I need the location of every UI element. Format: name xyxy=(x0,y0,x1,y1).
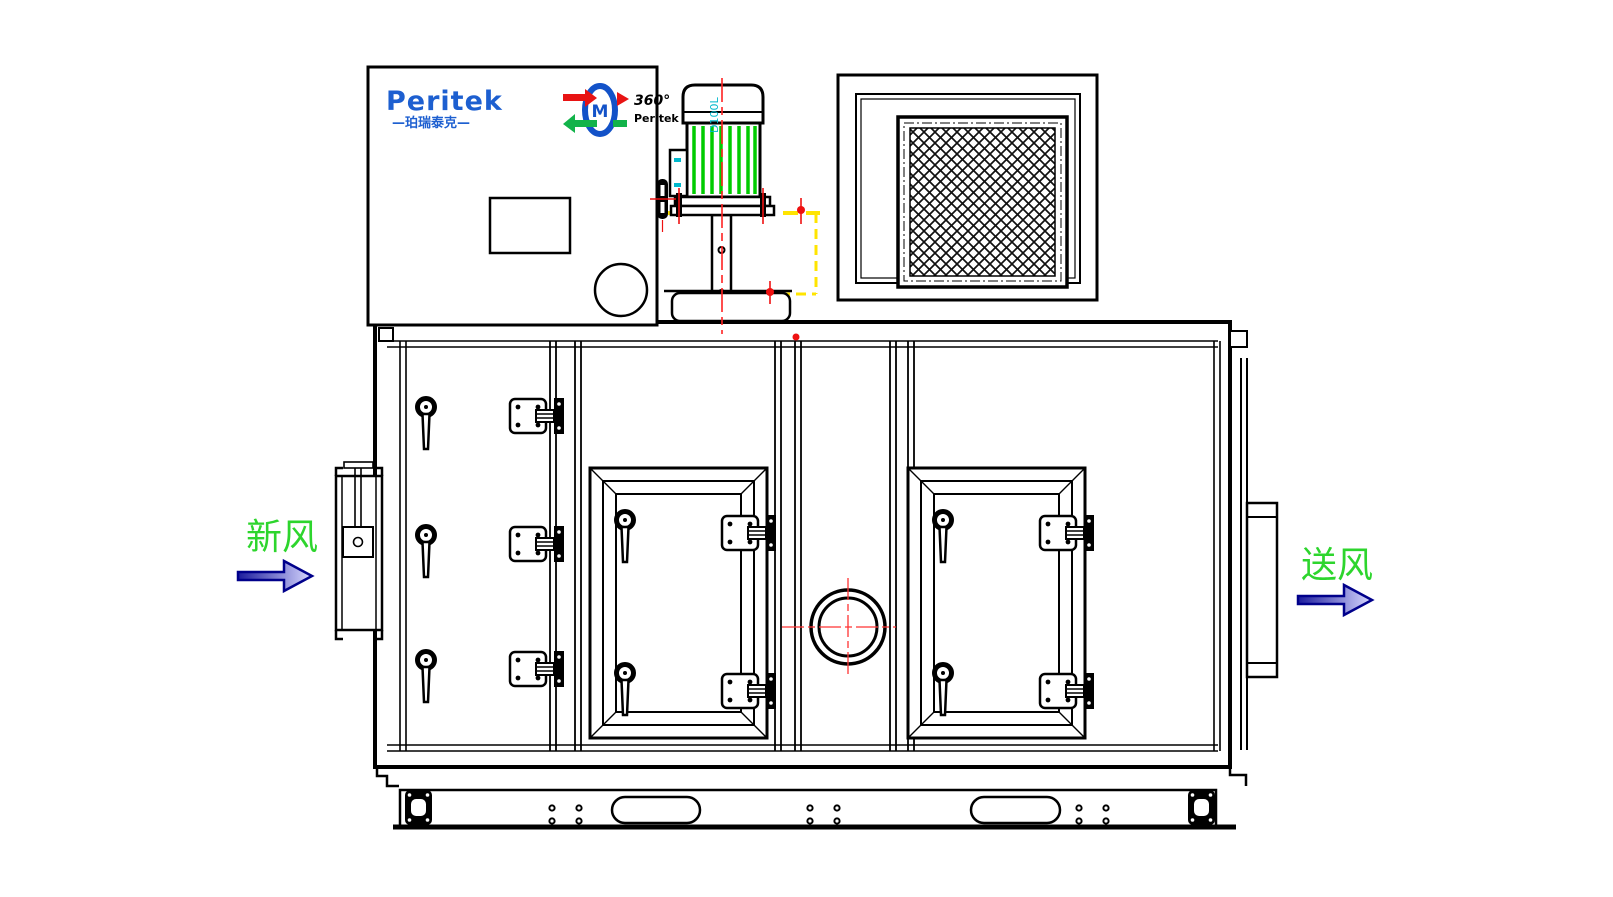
door-hinge xyxy=(510,398,564,434)
rotor-outlet-bar-icon xyxy=(613,120,627,127)
supply-air-outlet-duct xyxy=(1230,331,1277,750)
door-hinge xyxy=(510,651,564,687)
return-air-filter-box xyxy=(838,75,1097,300)
base-frame xyxy=(393,790,1236,827)
brand-logo-text: Peritek xyxy=(386,86,503,117)
rotor-hub-letter: M xyxy=(592,102,609,122)
fresh-air-inlet-duct xyxy=(336,462,382,639)
supply-air-label: 送风 xyxy=(1301,545,1373,586)
supply-air-arrow-icon xyxy=(1298,585,1372,615)
brand-logo-subtext: —珀瑞泰克— xyxy=(392,115,470,131)
anchor-bracket xyxy=(405,790,432,825)
unit-body xyxy=(375,322,1246,786)
control-cabinet: Peritek —珀瑞泰克— M 360° Peritek xyxy=(368,67,679,325)
door-hinge xyxy=(722,673,776,709)
ahu-front-elevation-drawing: Peritek —珀瑞泰克— M 360° Peritek xyxy=(0,0,1613,897)
door-hinge xyxy=(722,515,776,551)
motor-pedestal xyxy=(672,293,790,321)
forklift-slot xyxy=(971,797,1060,823)
hidden-outline-yellow xyxy=(668,206,820,294)
rotor-brand-label: Peritek xyxy=(634,112,679,125)
anchor-bracket xyxy=(1188,790,1215,825)
forklift-slot xyxy=(612,797,700,823)
nameplate-rect xyxy=(490,198,570,253)
filter-mesh xyxy=(910,128,1055,276)
motor-cap xyxy=(683,85,763,123)
top-left-step xyxy=(379,328,393,341)
cad-viewport: Peritek —珀瑞泰克— M 360° Peritek xyxy=(0,0,1613,897)
door-hinge xyxy=(1040,515,1094,551)
middle-access-door xyxy=(590,468,776,738)
rotor-angle-label: 360° xyxy=(634,93,670,109)
right-access-door xyxy=(908,468,1094,738)
fresh-air-label: 新风 xyxy=(246,517,318,558)
cable-gland-circle xyxy=(595,264,647,316)
bottom-left-step xyxy=(377,767,399,786)
bottom-right-step xyxy=(1230,767,1246,786)
motor-model-label: D100L xyxy=(708,97,721,133)
fresh-air-arrow-icon xyxy=(238,561,312,591)
door-hinge xyxy=(510,526,564,562)
door-hinge xyxy=(1040,673,1094,709)
